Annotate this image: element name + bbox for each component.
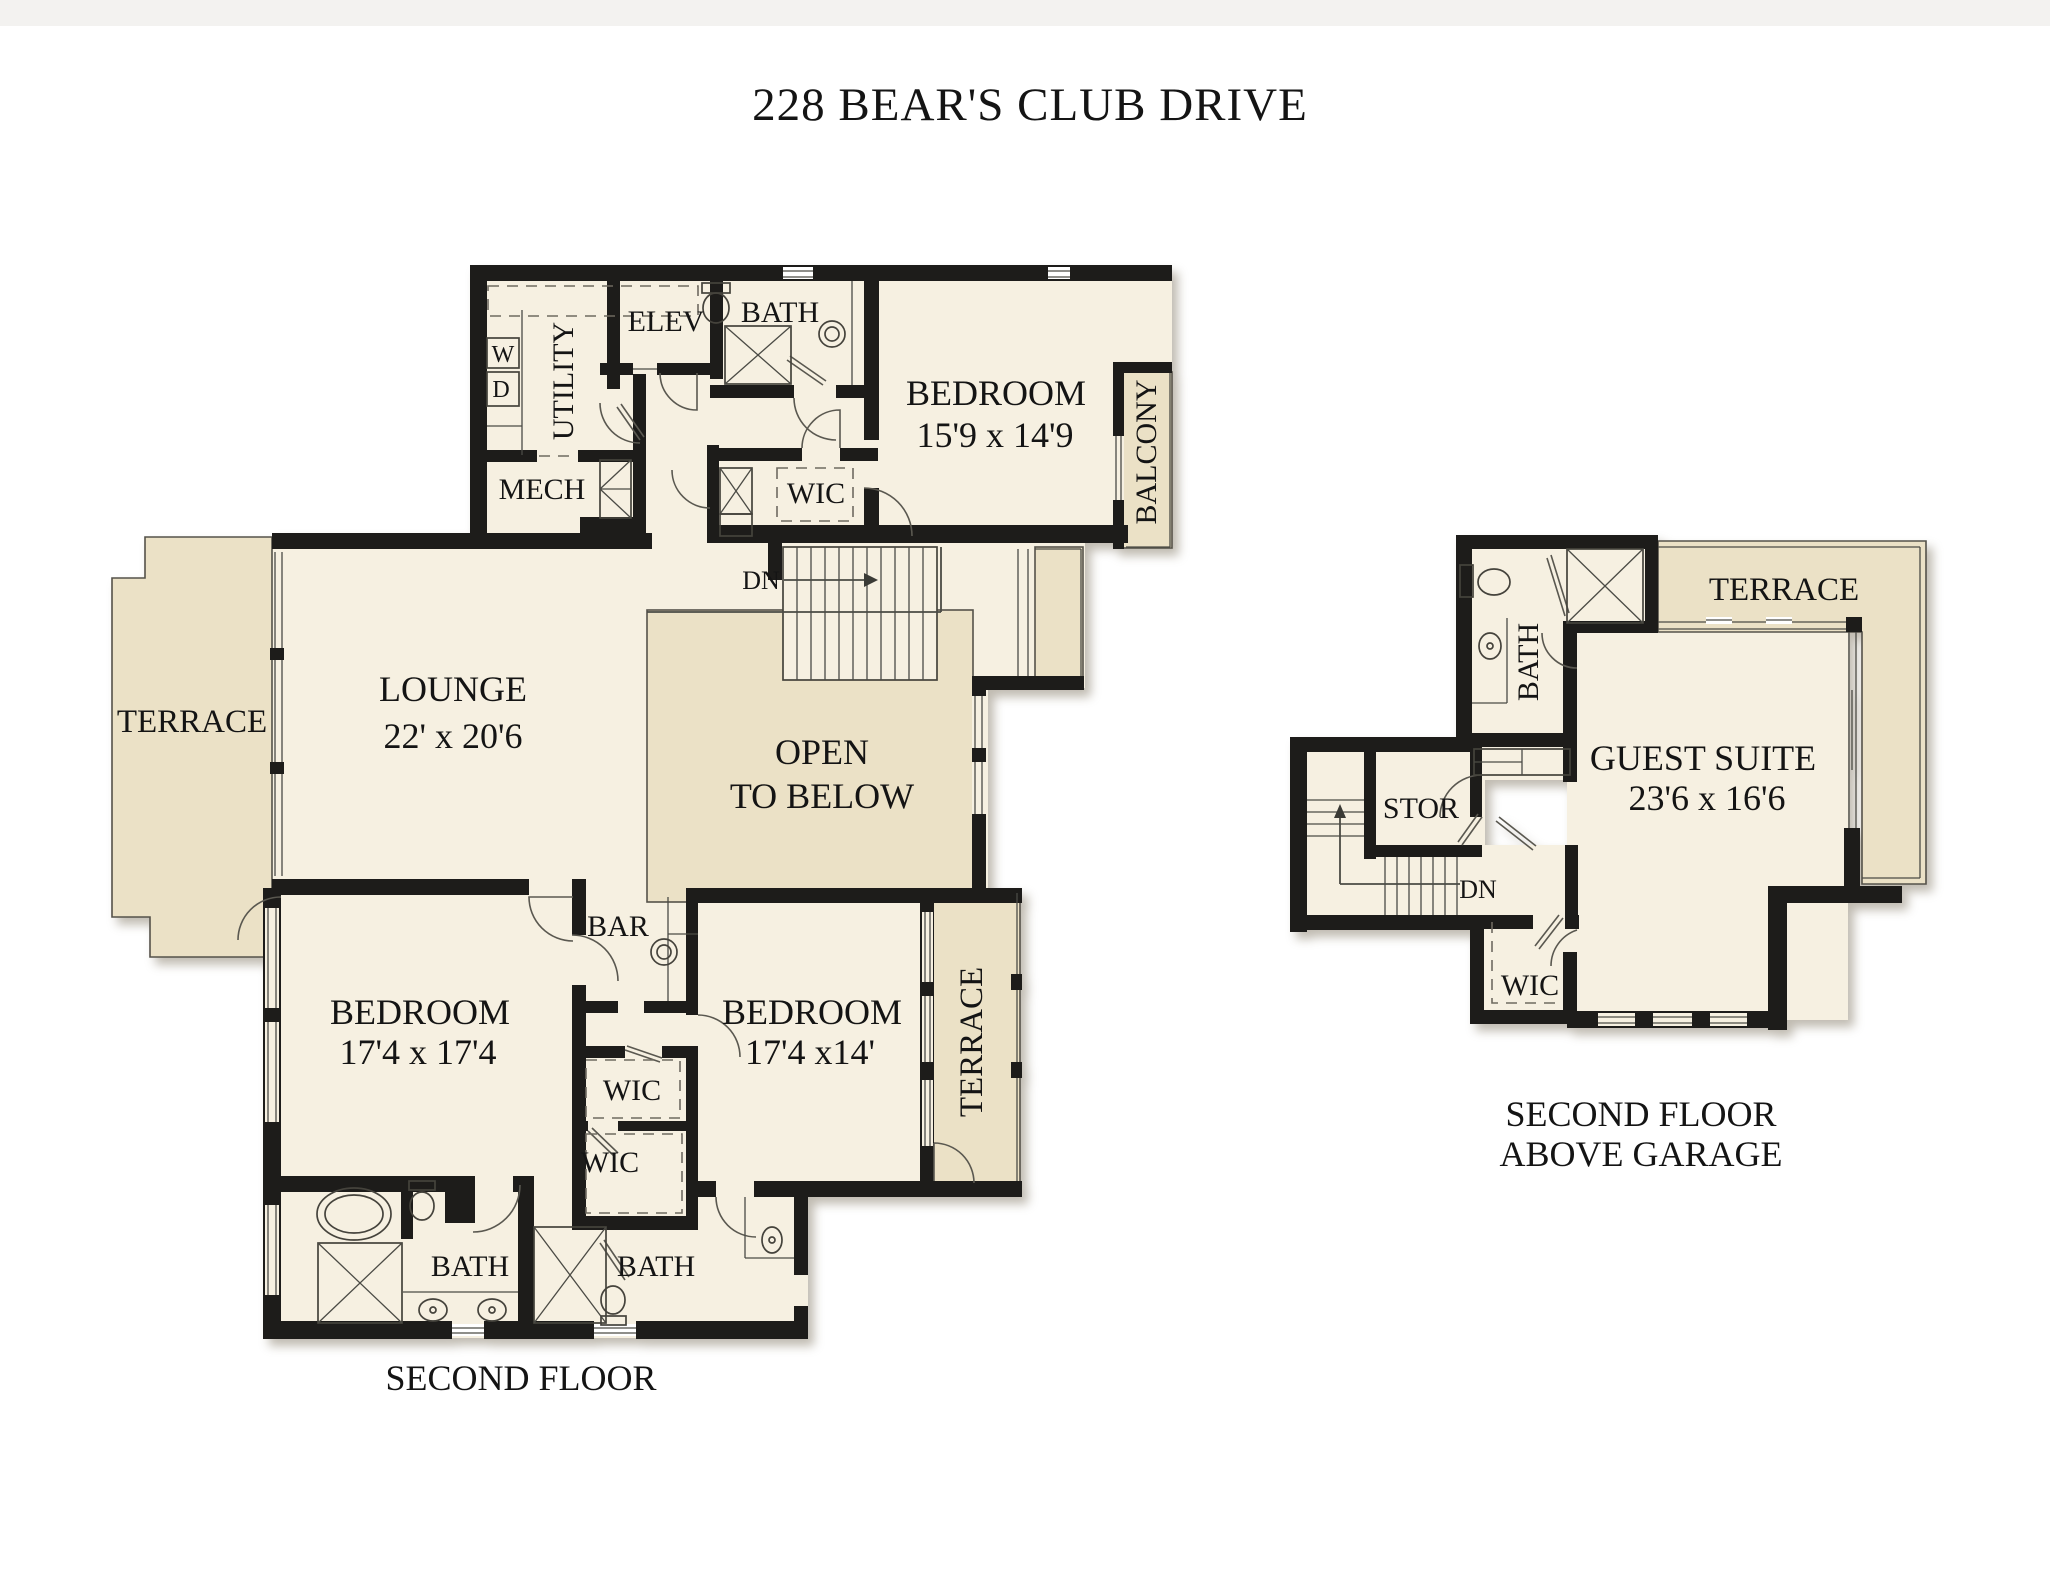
room-label-bedroom2: BEDROOM [722, 992, 902, 1032]
garage-plan-caption-2: ABOVE GARAGE [1500, 1134, 1783, 1174]
stairs-dn-label: DN [742, 566, 780, 595]
open-below-label-2: TO BELOW [730, 776, 914, 816]
room-label-bedroom-master: BEDROOM [906, 373, 1086, 413]
plan-garage: TERRACE BATH GUEST SUITE 23'6 x 16'6 STO… [1290, 535, 1926, 1030]
room-dim-bedroom1: 17'4 x 17'4 [340, 1032, 497, 1072]
terrace-left-area [112, 537, 272, 957]
washer-label: W [492, 342, 515, 368]
room-label-utility: UTILITY [547, 322, 580, 440]
guest-suite-dim: 23'6 x 16'6 [1629, 778, 1786, 818]
room-label-bath2: BATH [617, 1250, 695, 1283]
terrace-left-label: TERRACE [117, 704, 267, 740]
room-dim-bedroom-master: 15'9 x 14'9 [917, 415, 1074, 455]
room-label-wic2: WIC [581, 1146, 639, 1179]
floorplan-drawing: ELEV BATH BEDROOM 15'9 x 14'9 BALCONY UT… [0, 0, 2050, 1592]
garage-dn-label: DN [1459, 875, 1497, 904]
deck-strip-area [1035, 547, 1083, 677]
room-label-lounge: LOUNGE [379, 669, 527, 709]
garage-plan-caption-1: SECOND FLOOR [1505, 1094, 1776, 1134]
stor-label: STOR [1383, 792, 1459, 825]
room-dim-bedroom2: 17'4 x14' [745, 1032, 875, 1072]
floorplan-page: ELEV BATH BEDROOM 15'9 x 14'9 BALCONY UT… [0, 0, 2050, 1592]
garage-floor-fills [1292, 537, 1926, 1023]
main-plan-caption: SECOND FLOOR [385, 1358, 656, 1398]
room-label-bath-top: BATH [741, 296, 819, 329]
garage-terrace-label: TERRACE [1709, 572, 1859, 608]
guest-suite-label: GUEST SUITE [1590, 738, 1816, 778]
room-label-balcony: BALCONY [1130, 379, 1163, 524]
room-label-mech: MECH [499, 473, 586, 506]
room-label-elev: ELEV [628, 305, 705, 338]
terrace-right-label: TERRACE [954, 967, 990, 1117]
garage-wic-label: WIC [1501, 969, 1559, 1002]
room-dim-lounge: 22' x 20'6 [384, 716, 523, 756]
room-label-wic1: WIC [603, 1074, 661, 1107]
page-title: 228 BEAR'S CLUB DRIVE [752, 79, 1308, 131]
open-below-label-1: OPEN [775, 732, 869, 772]
room-label-bath1: BATH [431, 1250, 509, 1283]
plan-main: ELEV BATH BEDROOM 15'9 x 14'9 BALCONY UT… [112, 265, 1172, 1339]
room-label-bedroom1: BEDROOM [330, 992, 510, 1032]
dryer-label: D [492, 377, 509, 403]
room-label-bar: BAR [587, 910, 649, 943]
garage-bath-label: BATH [1512, 623, 1545, 701]
room-label-wic-top: WIC [787, 477, 845, 510]
